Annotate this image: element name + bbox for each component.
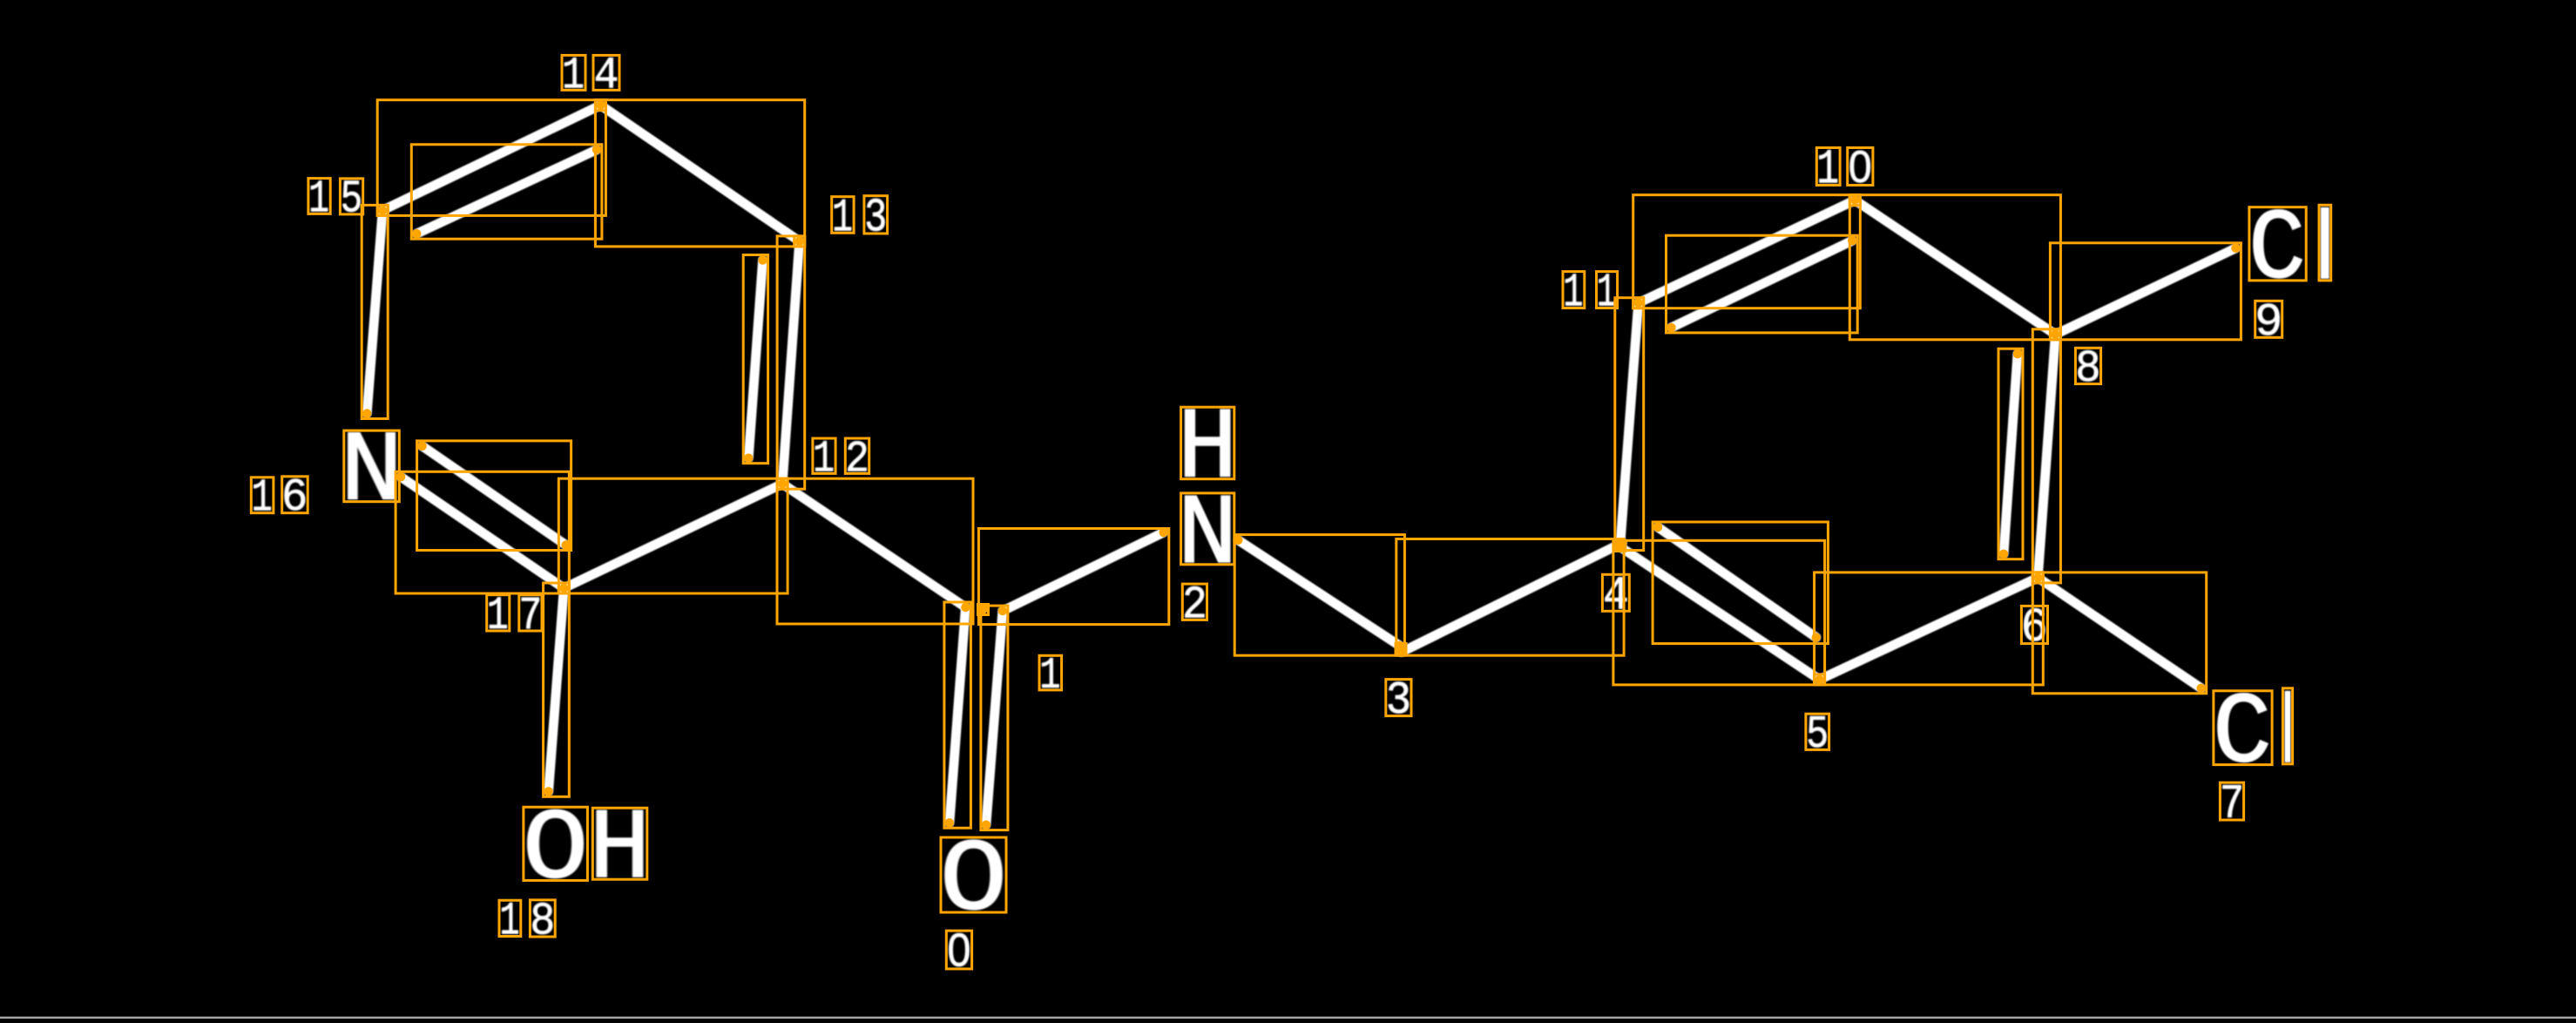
svg-text:1: 1 — [251, 473, 273, 525]
svg-text:2: 2 — [845, 433, 869, 484]
svg-text:N: N — [340, 417, 403, 529]
svg-text:6: 6 — [281, 471, 308, 524]
svg-text:O: O — [939, 824, 1007, 940]
svg-text:3: 3 — [864, 191, 887, 245]
svg-text:1: 1 — [308, 174, 329, 227]
svg-text:1: 1 — [499, 896, 520, 948]
svg-text:4: 4 — [594, 50, 619, 101]
svg-text:1: 1 — [832, 192, 853, 245]
svg-text:1: 1 — [1563, 267, 1584, 321]
svg-text:C: C — [2248, 193, 2306, 308]
svg-text:O: O — [523, 794, 589, 907]
svg-text:7: 7 — [2220, 777, 2245, 833]
svg-text:N: N — [1177, 478, 1238, 593]
svg-text:8: 8 — [530, 897, 555, 949]
svg-text:8: 8 — [2075, 344, 2101, 395]
svg-text:H: H — [589, 794, 651, 908]
svg-text:3: 3 — [1386, 675, 1411, 727]
svg-text:1: 1 — [1039, 651, 1061, 701]
svg-text:C: C — [2213, 677, 2272, 792]
svg-text:1: 1 — [1816, 143, 1839, 199]
svg-text:1: 1 — [1597, 267, 1617, 321]
svg-text:1: 1 — [487, 591, 509, 643]
svg-text:2: 2 — [1182, 580, 1207, 632]
svg-text:1: 1 — [562, 51, 585, 101]
svg-text:7: 7 — [518, 590, 542, 642]
svg-text:5: 5 — [1806, 708, 1829, 761]
svg-text:9: 9 — [2255, 296, 2282, 349]
svg-text:5: 5 — [341, 174, 363, 226]
